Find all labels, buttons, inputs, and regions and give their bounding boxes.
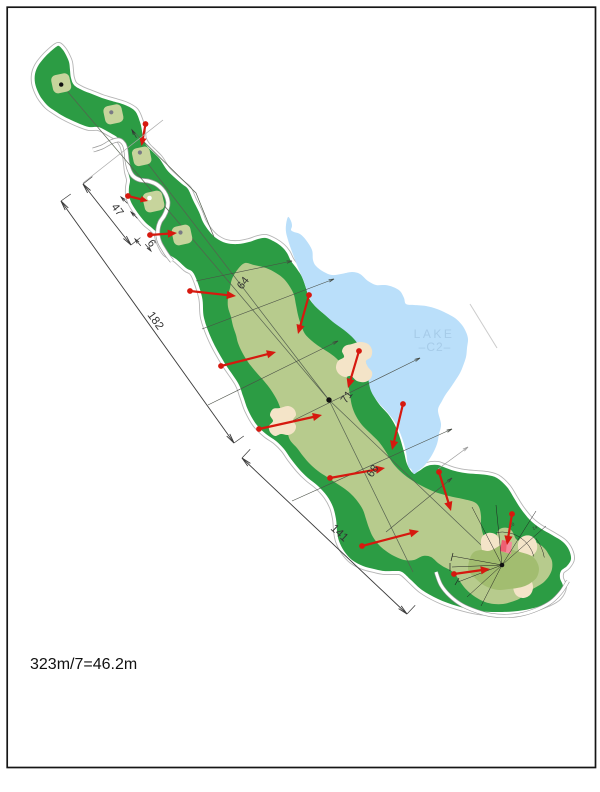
svg-text:–C2–: –C2–: [419, 340, 452, 354]
svg-text:323m/7=46.2m: 323m/7=46.2m: [30, 656, 137, 673]
svg-text:LAKE: LAKE: [414, 327, 455, 341]
